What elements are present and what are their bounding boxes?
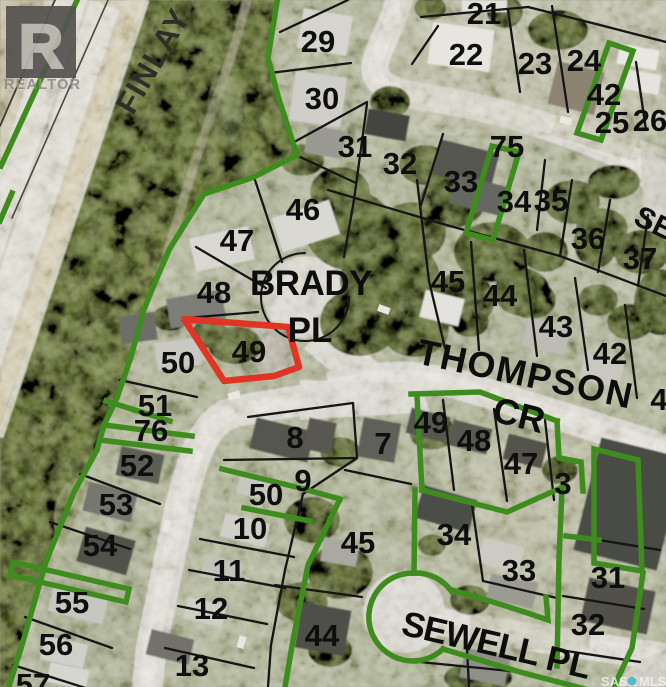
svg-text:49: 49 (232, 334, 266, 369)
svg-text:36: 36 (571, 221, 605, 256)
svg-text:29: 29 (301, 24, 335, 59)
svg-text:54: 54 (83, 528, 118, 563)
svg-text:33: 33 (502, 553, 536, 588)
svg-text:50: 50 (249, 477, 283, 512)
svg-text:47: 47 (504, 446, 538, 481)
svg-text:45: 45 (431, 264, 465, 299)
svg-text:45: 45 (341, 525, 375, 560)
svg-text:30: 30 (305, 81, 339, 116)
svg-text:7: 7 (374, 426, 391, 461)
svg-text:37: 37 (623, 241, 657, 276)
svg-text:11: 11 (213, 553, 246, 588)
svg-text:50: 50 (161, 345, 195, 380)
svg-text:25: 25 (595, 105, 629, 140)
svg-text:34: 34 (497, 184, 532, 219)
svg-text:22: 22 (449, 37, 483, 72)
svg-text:49: 49 (414, 405, 448, 440)
svg-text:44: 44 (305, 618, 340, 653)
svg-text:56: 56 (39, 627, 73, 662)
svg-text:23: 23 (518, 46, 552, 81)
svg-text:32: 32 (571, 607, 605, 642)
svg-text:13: 13 (175, 648, 209, 683)
svg-text:76: 76 (134, 413, 168, 448)
svg-text:48: 48 (457, 423, 491, 458)
svg-text:52: 52 (120, 448, 154, 483)
svg-text:35: 35 (534, 183, 568, 218)
svg-text:12: 12 (194, 591, 228, 626)
svg-text:33: 33 (444, 164, 478, 199)
svg-text:8: 8 (286, 420, 303, 455)
svg-text:26: 26 (633, 103, 666, 138)
svg-text:34: 34 (437, 517, 472, 552)
svg-text:MLS: MLS (639, 674, 666, 687)
svg-text:75: 75 (490, 129, 524, 164)
svg-text:48: 48 (197, 275, 231, 310)
svg-text:R: R (19, 13, 64, 82)
svg-text:9: 9 (294, 463, 311, 498)
svg-text:32: 32 (383, 146, 417, 181)
svg-text:10: 10 (233, 511, 267, 546)
svg-text:53: 53 (99, 487, 133, 522)
svg-text:REALTOR: REALTOR (4, 77, 81, 93)
svg-text:31: 31 (591, 560, 625, 595)
svg-text:31: 31 (338, 129, 372, 164)
svg-text:24: 24 (567, 43, 602, 78)
svg-text:47: 47 (220, 223, 254, 258)
svg-text:21: 21 (467, 0, 501, 31)
svg-text:BRADY: BRADY (250, 264, 372, 303)
svg-text:4: 4 (650, 382, 666, 417)
svg-text:42: 42 (593, 336, 627, 371)
svg-text:44: 44 (483, 278, 518, 313)
svg-text:46: 46 (286, 192, 320, 227)
svg-text:PL: PL (288, 311, 333, 350)
svg-text:55: 55 (55, 585, 89, 620)
svg-text:3: 3 (554, 466, 571, 501)
svg-text:43: 43 (539, 309, 573, 344)
svg-text:57: 57 (16, 667, 50, 687)
